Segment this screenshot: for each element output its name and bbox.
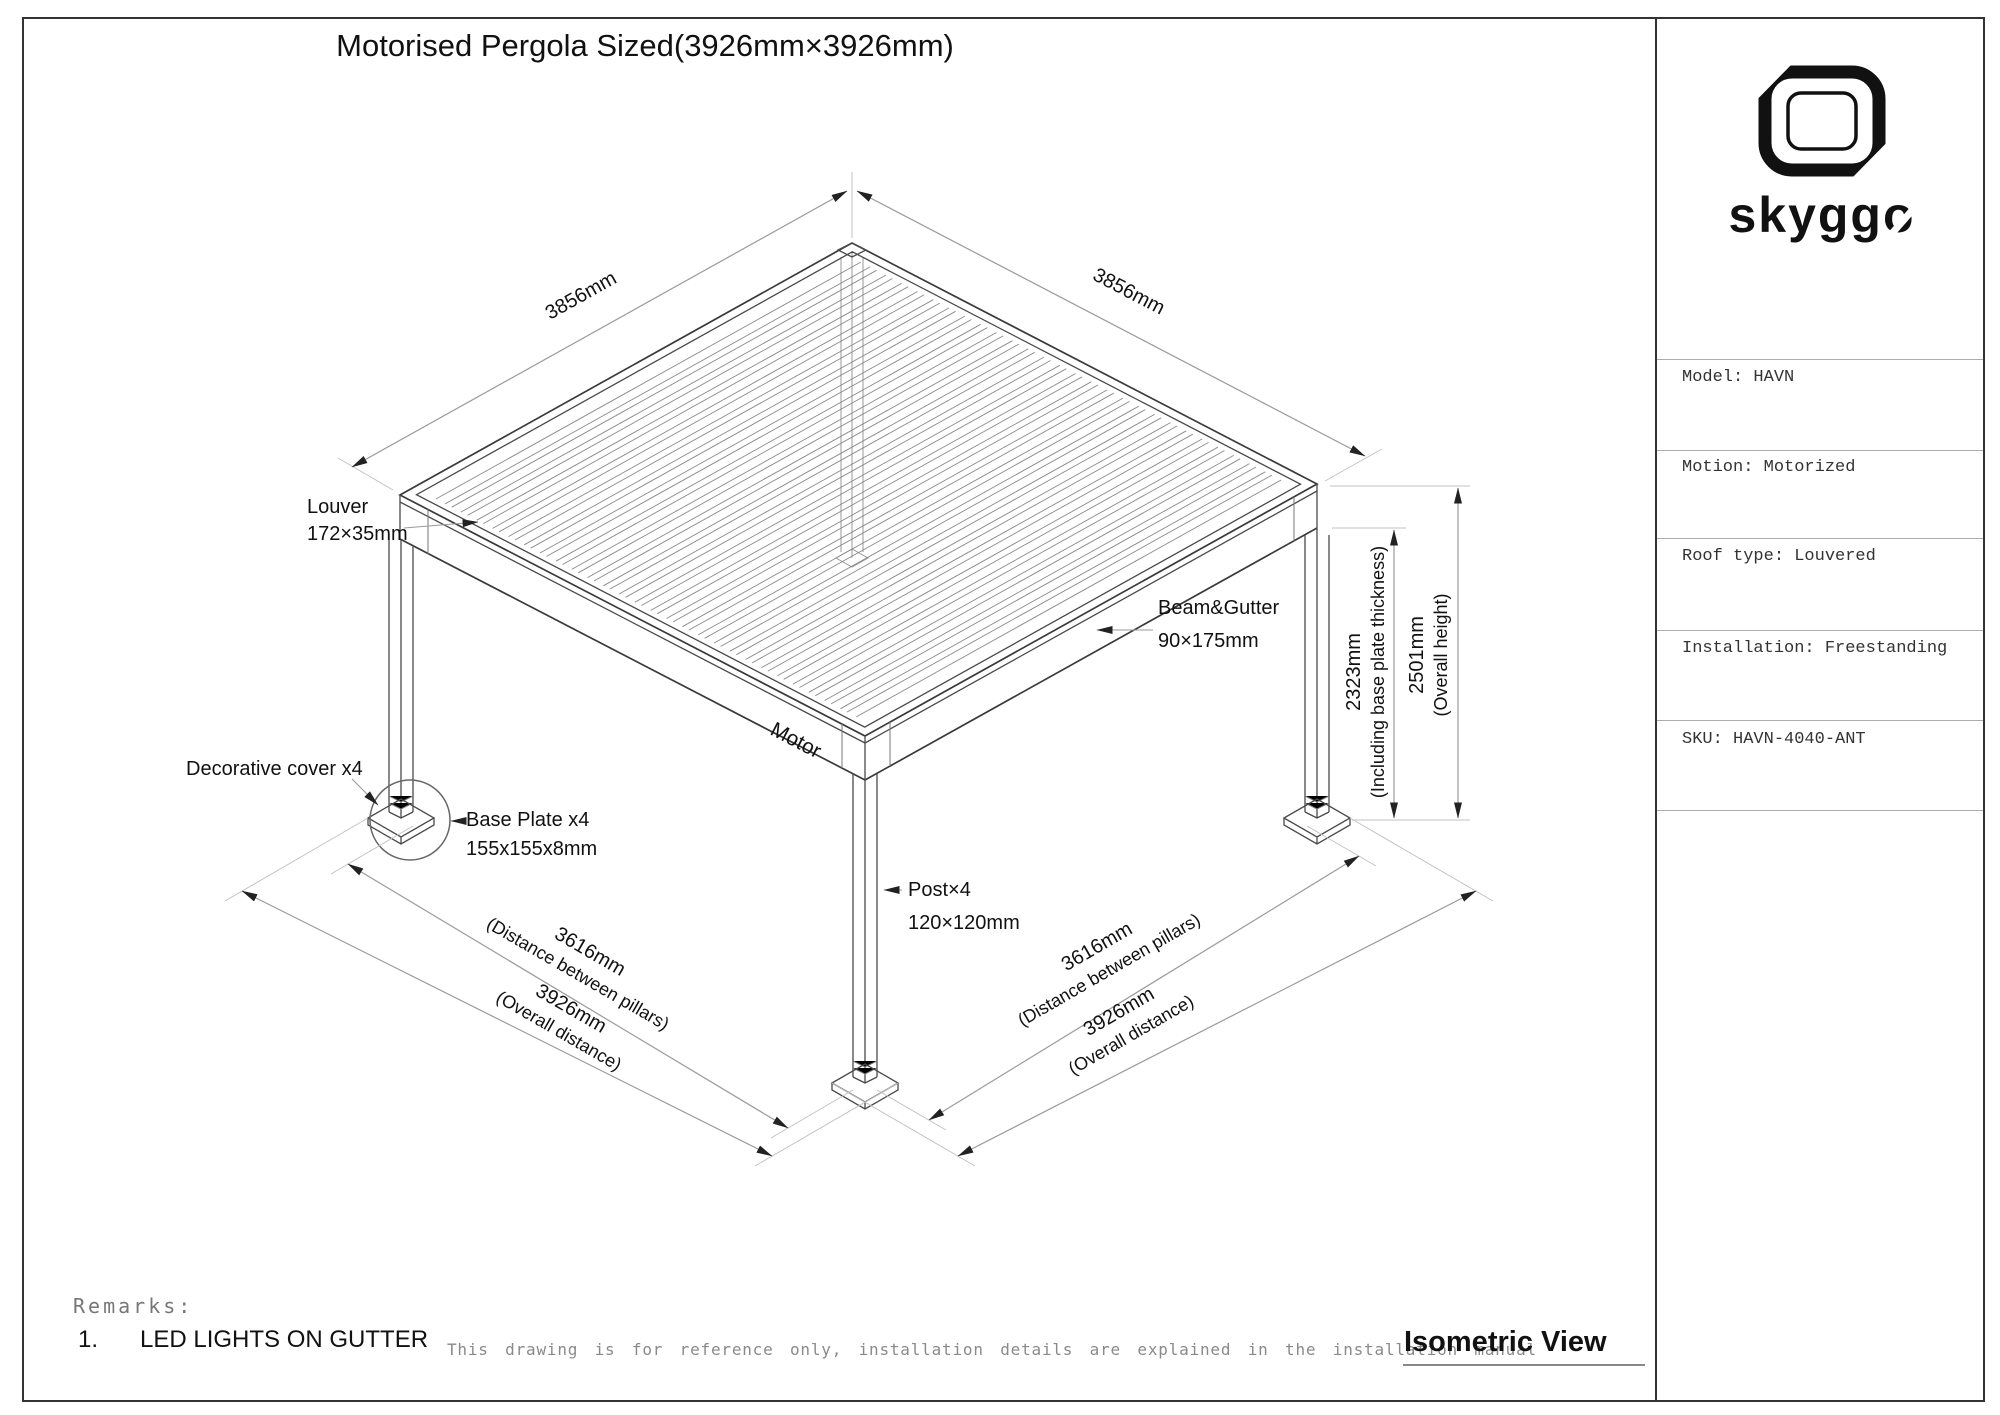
sidebar-divider — [1655, 17, 1657, 1400]
remarks-title: Remarks: — [73, 1294, 193, 1318]
disclaimer-text: This drawing is for reference only, inst… — [447, 1340, 1407, 1359]
brand-logo-icon — [1690, 48, 1954, 193]
sidebar-rule — [1657, 359, 1983, 360]
sidebar-rule — [1657, 538, 1983, 539]
remark-item: 1.LED LIGHTS ON GUTTER — [78, 1326, 428, 1354]
remark-text: LED LIGHTS ON GUTTER — [140, 1326, 428, 1353]
spec-motion: Motion: Motorized — [1682, 458, 1972, 477]
page-title: Motorised Pergola Sized(3926mm×3926mm) — [0, 28, 1290, 64]
brand-o-slash — [1870, 186, 1940, 242]
remark-number: 1. — [78, 1326, 140, 1354]
sidebar-rule — [1657, 720, 1983, 721]
spec-installation: Installation: Freestanding — [1682, 639, 1972, 658]
spec-roof-type: Roof type: Louvered — [1682, 547, 1972, 566]
view-label-underline — [1403, 1364, 1645, 1366]
spec-model: Model: HAVN — [1682, 368, 1972, 387]
sidebar-rule — [1657, 810, 1983, 811]
spec-sku: SKU: HAVN-4040-ANT — [1682, 730, 1972, 749]
sidebar-rule — [1657, 450, 1983, 451]
view-label: Isometric View — [1404, 1326, 1607, 1359]
sheet-border — [22, 17, 1985, 1402]
drawing-sheet: 3856mm 3856mm 2323mm (Including base pla… — [0, 0, 2000, 1415]
sidebar-rule — [1657, 630, 1983, 631]
